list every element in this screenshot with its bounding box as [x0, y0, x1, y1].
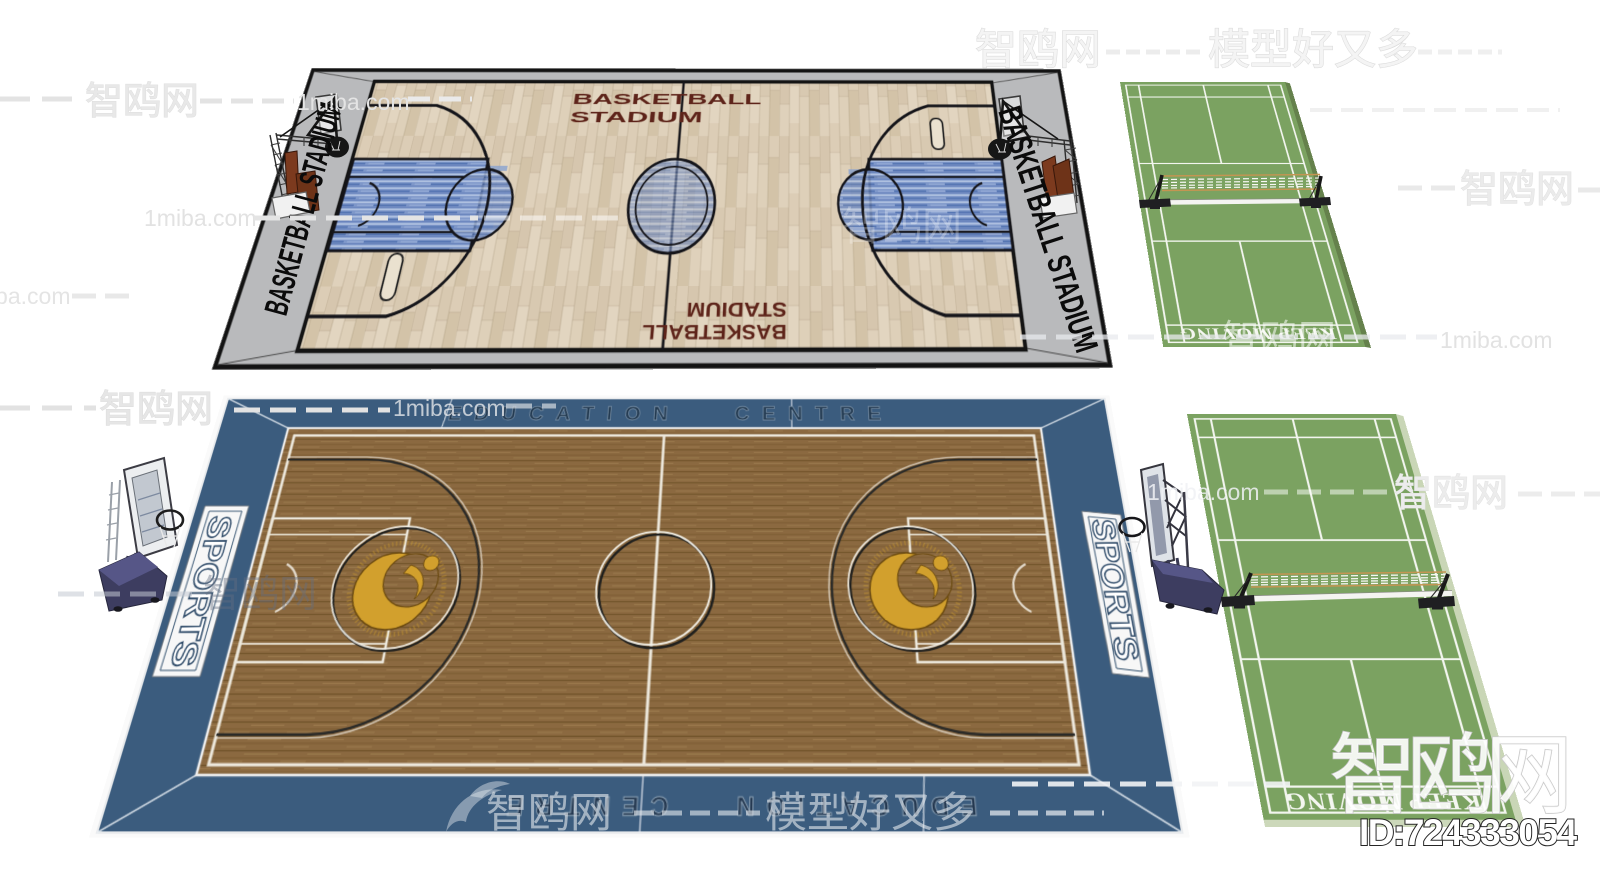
- svg-text:智鸥网: 智鸥网: [99, 389, 213, 431]
- svg-text:ID:724333054: ID:724333054: [1359, 812, 1577, 853]
- svg-text:智鸥网: 智鸥网: [1460, 169, 1574, 211]
- svg-text:1miba.com: 1miba.com: [297, 89, 409, 115]
- svg-text:1miba.com: 1miba.com: [1440, 327, 1552, 353]
- svg-text:1miba.com: 1miba.com: [1147, 479, 1259, 505]
- svg-text:智鸥网: 智鸥网: [1329, 726, 1566, 825]
- svg-text:模型好又多: 模型好又多: [1208, 26, 1418, 73]
- svg-text:1miba.com: 1miba.com: [393, 395, 505, 421]
- svg-text:智鸥网: 智鸥网: [1394, 473, 1508, 515]
- svg-text:1miba.com: 1miba.com: [144, 205, 256, 231]
- svg-text:1miba.com: 1miba.com: [0, 283, 70, 309]
- svg-text:智鸥网: 智鸥网: [486, 789, 612, 836]
- svg-text:智鸥网: 智鸥网: [1222, 319, 1336, 361]
- svg-text:智鸥网: 智鸥网: [203, 574, 317, 616]
- svg-text:智鸥网: 智鸥网: [85, 81, 199, 123]
- svg-text:模型好又多: 模型好又多: [765, 789, 975, 836]
- svg-text:智鸥网: 智鸥网: [842, 205, 962, 249]
- svg-text:智鸥网: 智鸥网: [975, 26, 1101, 73]
